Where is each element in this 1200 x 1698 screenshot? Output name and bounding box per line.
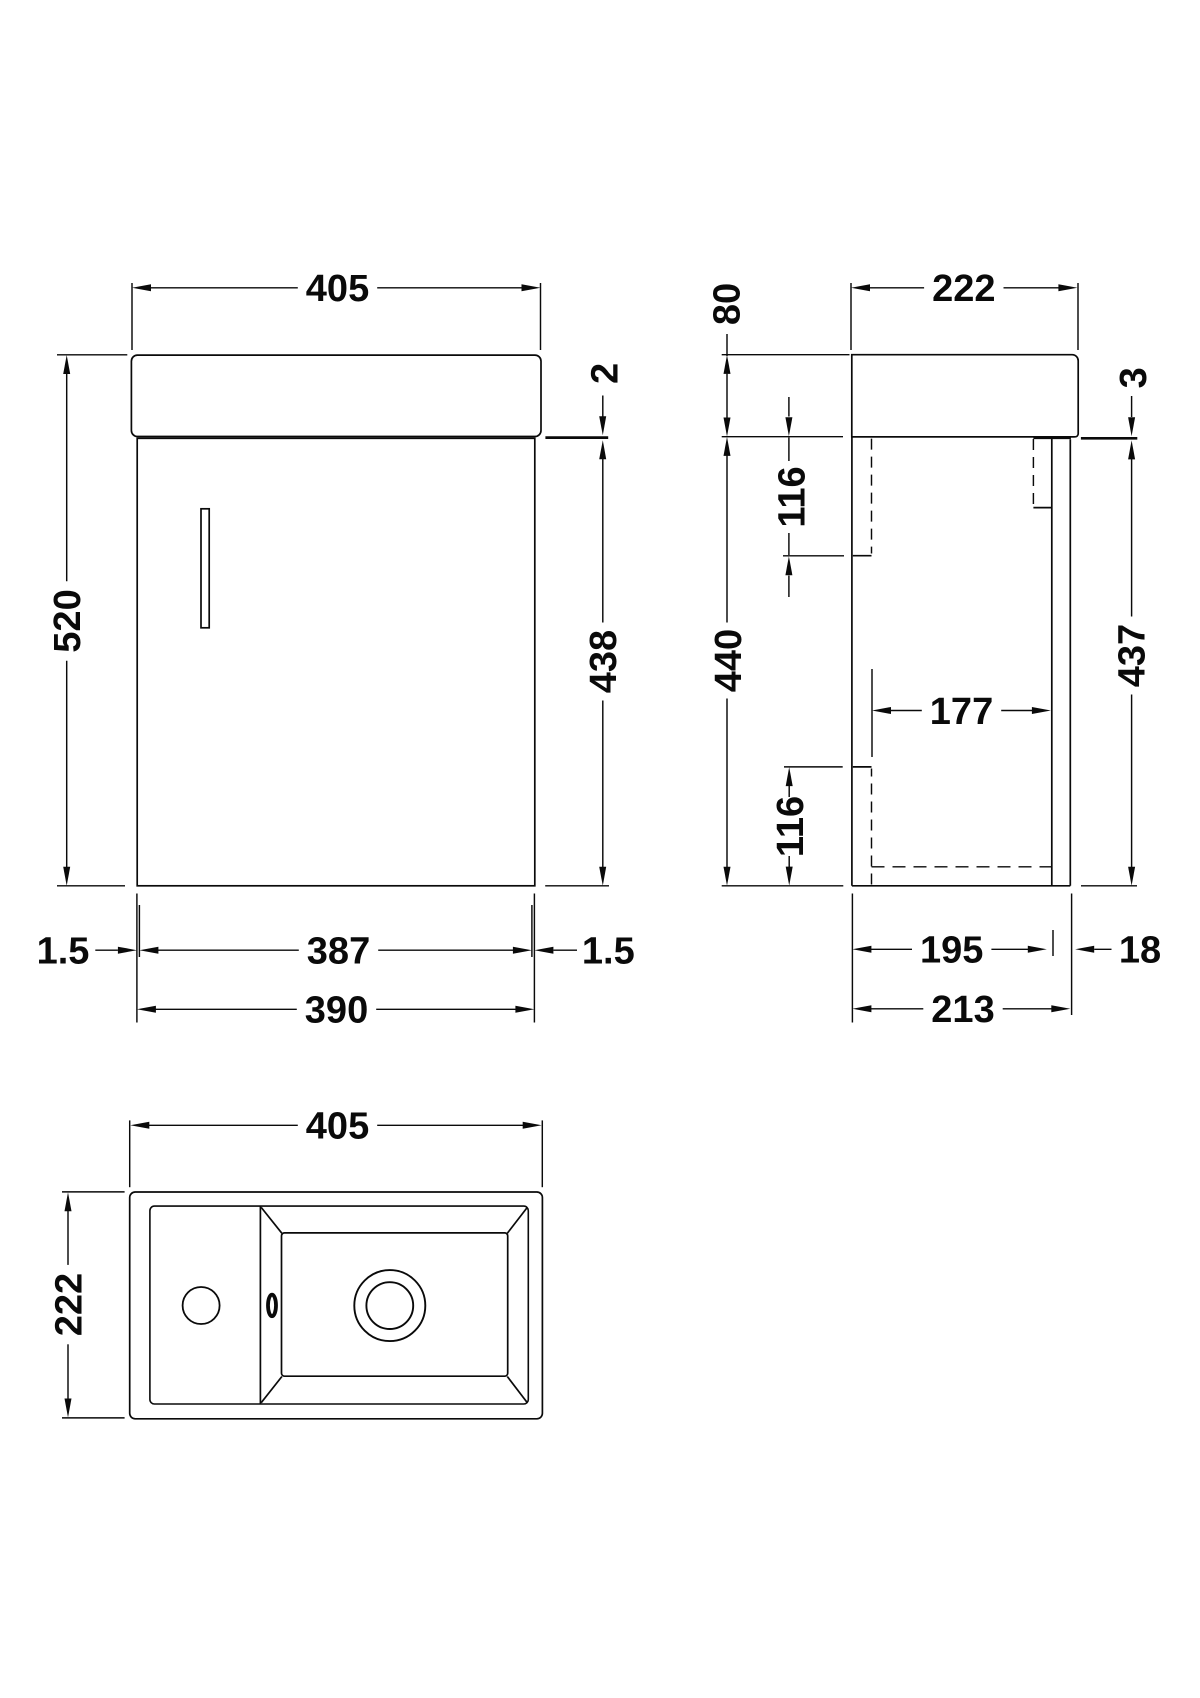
svg-text:1.5: 1.5: [37, 931, 90, 973]
svg-text:390: 390: [305, 990, 368, 1032]
svg-text:213: 213: [931, 989, 994, 1031]
svg-text:387: 387: [307, 931, 370, 973]
svg-text:440: 440: [708, 629, 750, 692]
svg-text:80: 80: [706, 283, 748, 325]
svg-text:177: 177: [930, 691, 993, 733]
svg-text:405: 405: [306, 268, 369, 310]
svg-text:2: 2: [585, 363, 627, 384]
svg-text:437: 437: [1111, 624, 1153, 687]
svg-text:222: 222: [48, 1273, 90, 1336]
svg-text:520: 520: [47, 589, 89, 652]
svg-text:222: 222: [932, 268, 995, 310]
svg-text:116: 116: [771, 466, 813, 527]
svg-text:116: 116: [770, 796, 812, 857]
svg-text:438: 438: [583, 630, 625, 693]
svg-text:195: 195: [920, 930, 983, 972]
svg-text:18: 18: [1119, 930, 1161, 972]
svg-text:1.5: 1.5: [582, 931, 635, 973]
svg-text:405: 405: [306, 1106, 369, 1148]
svg-text:3: 3: [1113, 367, 1155, 388]
